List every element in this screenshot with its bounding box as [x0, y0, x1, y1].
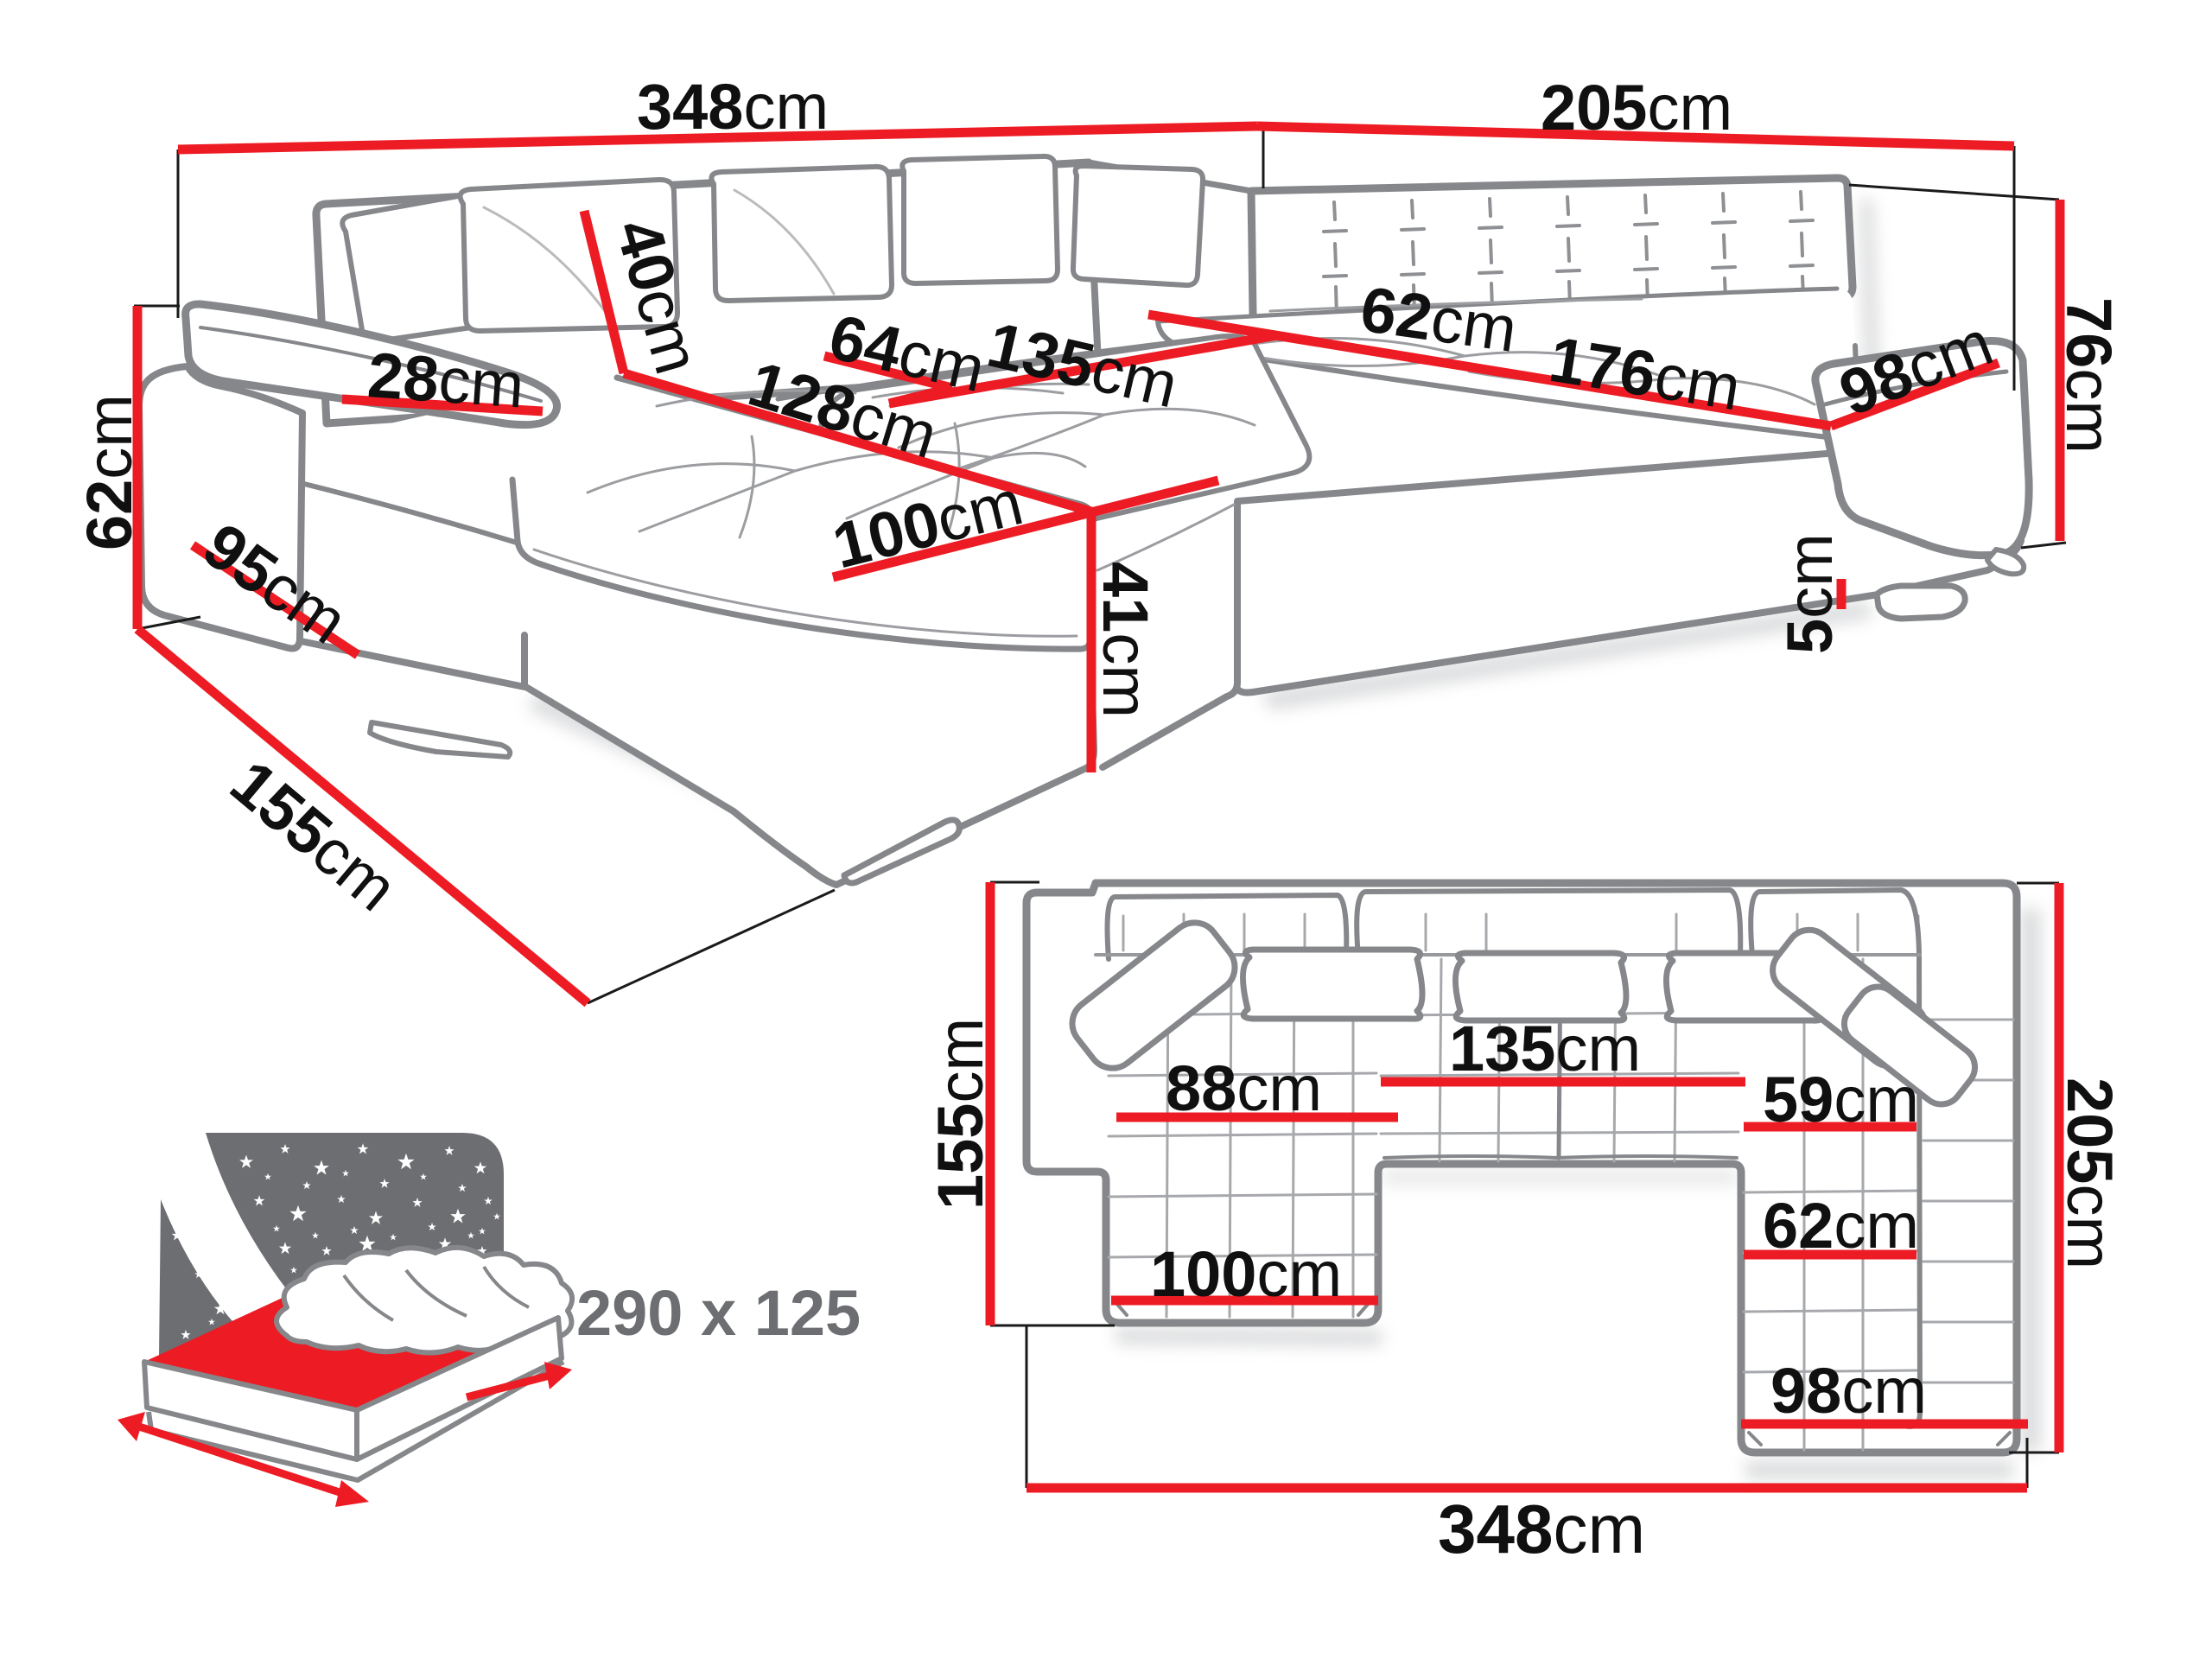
svg-text:5cm: 5cm [1774, 533, 1846, 654]
svg-text:98cm: 98cm [1770, 1355, 1927, 1427]
svg-text:205cm: 205cm [1541, 72, 1732, 143]
svg-text:62cm: 62cm [73, 394, 145, 550]
svg-text:62cm: 62cm [1763, 1190, 1919, 1262]
svg-text:205cm: 205cm [2054, 1077, 2126, 1269]
svg-text:41cm: 41cm [1090, 562, 1161, 718]
svg-text:88cm: 88cm [1166, 1052, 1322, 1124]
svg-text:100cm: 100cm [1150, 1238, 1342, 1310]
svg-text:76cm: 76cm [2053, 297, 2125, 454]
svg-text:28cm: 28cm [365, 339, 526, 421]
svg-text:290 x 125: 290 x 125 [576, 1277, 861, 1349]
svg-text:348cm: 348cm [1438, 1491, 1645, 1567]
svg-text:348cm: 348cm [637, 71, 829, 143]
svg-text:59cm: 59cm [1763, 1064, 1919, 1135]
svg-text:135cm: 135cm [1449, 1013, 1641, 1084]
svg-text:155cm: 155cm [925, 1018, 996, 1210]
